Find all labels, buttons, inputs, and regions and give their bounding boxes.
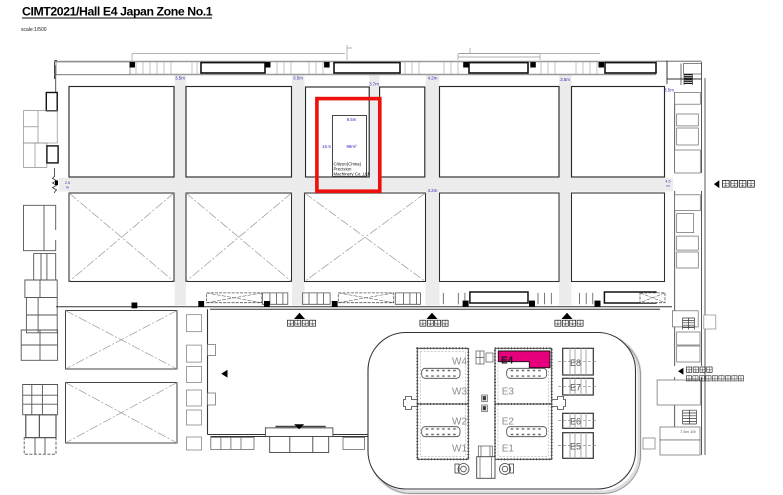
svg-text:3.7m: 3.7m (369, 82, 379, 87)
svg-text:10.5: 10.5 (322, 144, 331, 149)
svg-text:W3: W3 (452, 387, 467, 398)
svg-text:E3: E3 (502, 387, 515, 398)
svg-text:3.5m: 3.5m (293, 76, 303, 81)
svg-text:9.5m: 9.5m (347, 117, 357, 122)
svg-text:E6: E6 (570, 417, 581, 427)
svg-text:W4: W4 (452, 357, 467, 368)
svg-text:m: m (66, 186, 69, 190)
svg-text:2.5: 2.5 (65, 181, 70, 185)
svg-text:7.5m 10t: 7.5m 10t (680, 429, 696, 434)
svg-text:99m²: 99m² (346, 144, 357, 149)
svg-text:3.5m: 3.5m (664, 88, 674, 93)
svg-text:3.5m: 3.5m (560, 77, 570, 82)
svg-text:m: m (666, 184, 669, 188)
svg-text:E8: E8 (570, 358, 581, 368)
svg-text:Machinery Co.,Ltd: Machinery Co.,Ltd (334, 172, 370, 177)
svg-text:4.2m: 4.2m (428, 188, 438, 193)
svg-text:3.5m: 3.5m (175, 76, 185, 81)
svg-text:E5: E5 (570, 442, 581, 452)
svg-text:E1: E1 (502, 444, 515, 455)
svg-text:scale:1/500: scale:1/500 (21, 27, 47, 33)
svg-text:E2: E2 (502, 417, 515, 428)
svg-text:4.5: 4.5 (665, 180, 670, 184)
svg-text:CIMT2021/Hall E4 Japan Zone No: CIMT2021/Hall E4 Japan Zone No.1 (22, 5, 213, 19)
svg-text:E4: E4 (501, 356, 514, 367)
svg-text:4.2m: 4.2m (428, 76, 438, 81)
svg-text:W2: W2 (452, 417, 467, 428)
svg-text:W1: W1 (452, 444, 467, 455)
svg-text:E7: E7 (570, 383, 581, 393)
